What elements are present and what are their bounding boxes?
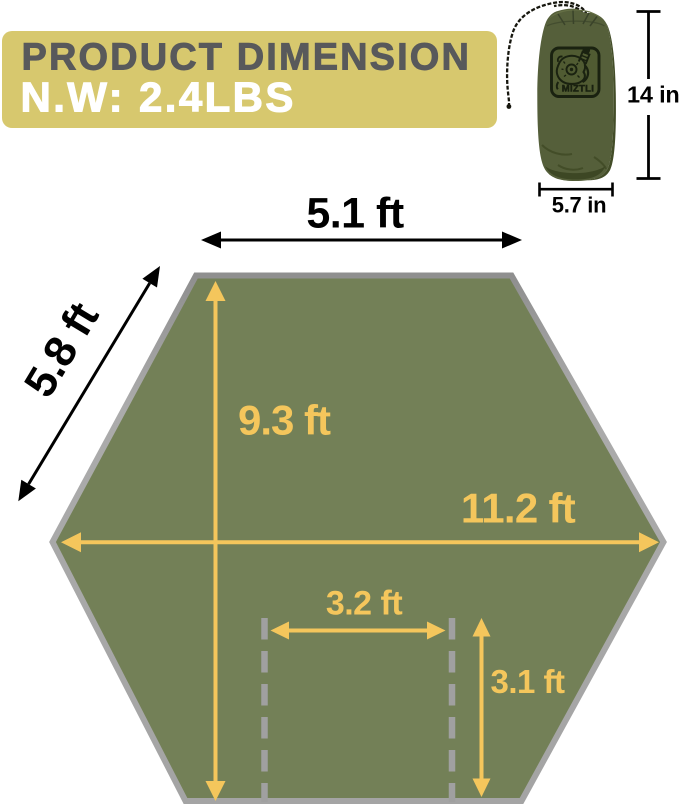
- svg-text:14 in: 14 in: [627, 82, 679, 108]
- svg-text:5.7 in: 5.7 in: [552, 193, 606, 218]
- svg-text:MIZTLI: MIZTLI: [562, 84, 594, 95]
- svg-text:N.W: 2.4LBS: N.W: 2.4LBS: [21, 74, 296, 121]
- svg-text:5.1 ft: 5.1 ft: [306, 190, 404, 238]
- svg-text:5.8 ft: 5.8 ft: [15, 294, 109, 405]
- svg-text:3.1 ft: 3.1 ft: [490, 663, 565, 700]
- svg-text:3.2 ft: 3.2 ft: [326, 585, 403, 623]
- svg-text:PRODUCT DIMENSION: PRODUCT DIMENSION: [22, 37, 472, 79]
- svg-text:11.2 ft: 11.2 ft: [461, 485, 576, 532]
- svg-text:9.3 ft: 9.3 ft: [238, 397, 331, 444]
